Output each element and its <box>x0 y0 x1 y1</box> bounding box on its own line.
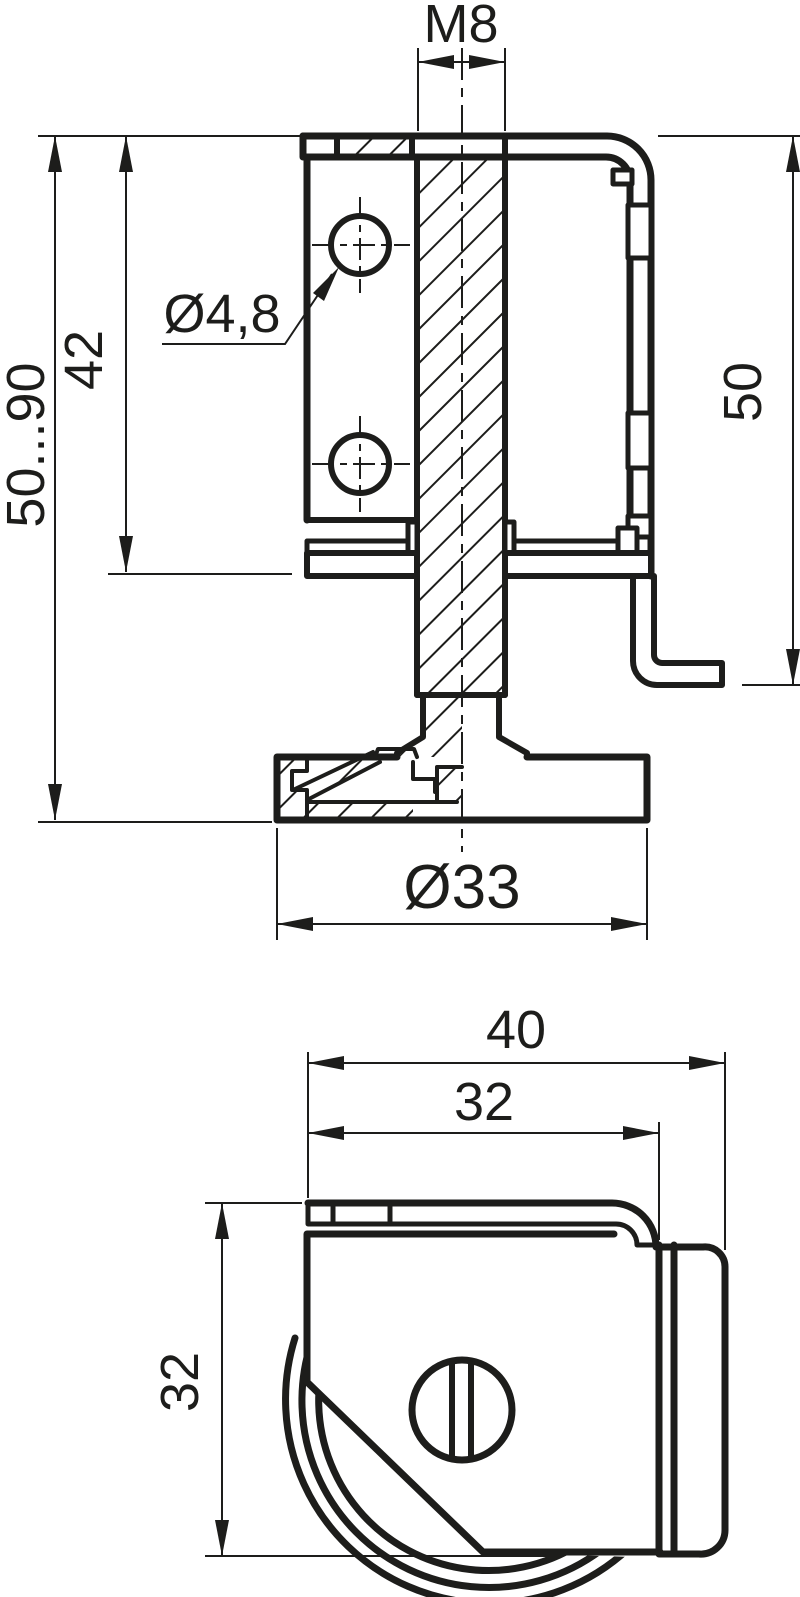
dim-label-thread: M8 <box>423 0 498 54</box>
dim-label-plate-width: 32 <box>454 1072 514 1132</box>
technical-drawing: M8 Ø4,8 50...90 42 50 Ø33 <box>0 0 800 1597</box>
dim-label-plate-height: 32 <box>150 1352 210 1412</box>
dim-label-bracket-height: 50 <box>713 362 773 422</box>
wall-notch <box>613 170 632 184</box>
foot-bottom-hatch <box>307 802 413 817</box>
dim-label-foot-diameter: Ø33 <box>403 853 520 922</box>
foot-insert-hatch <box>437 767 462 802</box>
bottom-plate-left <box>307 553 417 576</box>
drawing-canvas: M8 Ø4,8 50...90 42 50 Ø33 <box>0 0 800 1597</box>
dim-label-height-range: 50...90 <box>0 362 56 527</box>
bottom-plate-right <box>505 553 651 576</box>
screw-head <box>412 1360 512 1460</box>
flange-notch <box>618 528 637 553</box>
dim-label-hole-spacing: 42 <box>54 330 114 390</box>
nut-tab-left <box>408 522 417 553</box>
dim-label-overall-width: 40 <box>486 1000 546 1060</box>
dim-label-hole-diameter: Ø4,8 <box>163 284 280 344</box>
flap-cover <box>659 1245 725 1554</box>
top-plate-hatch <box>337 137 413 156</box>
wall-slot <box>628 205 651 258</box>
wall-slot <box>628 413 651 468</box>
